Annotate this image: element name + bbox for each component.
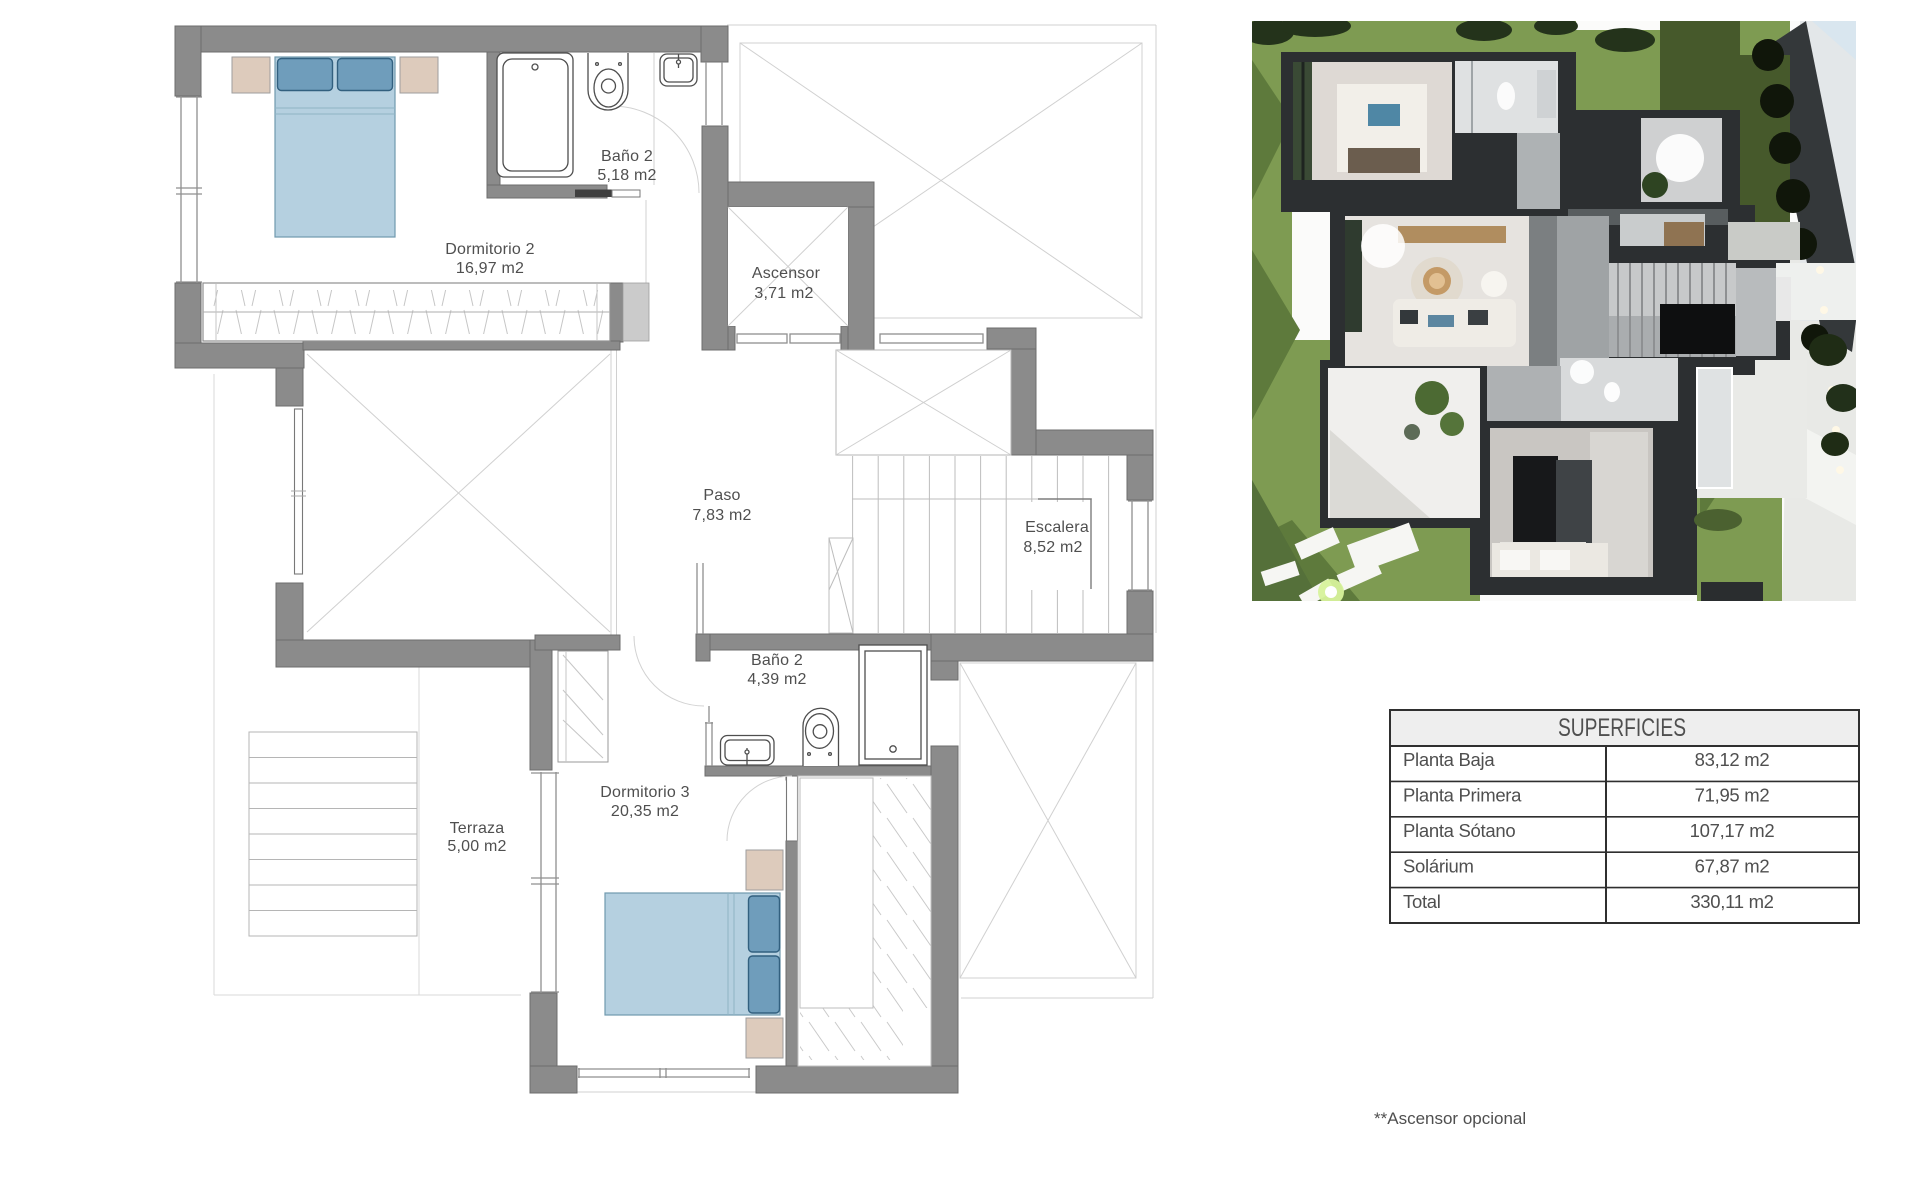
svg-text:Planta Baja: Planta Baja	[1403, 749, 1495, 770]
svg-text:Paso: Paso	[703, 487, 740, 504]
svg-text:Terraza: Terraza	[450, 820, 505, 837]
svg-text:**Ascensor opcional: **Ascensor opcional	[1374, 1109, 1526, 1128]
svg-text:Total: Total	[1403, 891, 1441, 912]
svg-text:3,71 m2: 3,71 m2	[754, 285, 813, 302]
svg-text:20,35 m2: 20,35 m2	[611, 803, 679, 820]
svg-text:Dormitorio 3: Dormitorio 3	[600, 784, 690, 801]
svg-text:Planta Sótano: Planta Sótano	[1403, 820, 1515, 841]
svg-text:71,95 m2: 71,95 m2	[1695, 785, 1770, 806]
svg-text:Planta Primera: Planta Primera	[1403, 785, 1522, 806]
svg-text:330,11 m2: 330,11 m2	[1690, 891, 1773, 912]
svg-text:SUPERFICIES: SUPERFICIES	[1558, 714, 1686, 742]
svg-text:8,52 m2: 8,52 m2	[1023, 539, 1082, 556]
svg-text:16,97 m2: 16,97 m2	[456, 260, 524, 277]
svg-text:7,83 m2: 7,83 m2	[692, 507, 751, 524]
svg-text:67,87 m2: 67,87 m2	[1695, 855, 1770, 876]
svg-text:Solárium: Solárium	[1403, 855, 1474, 876]
svg-text:Ascensor: Ascensor	[752, 265, 821, 282]
svg-text:Escalera: Escalera	[1025, 519, 1089, 536]
svg-text:Baño 2: Baño 2	[601, 148, 653, 165]
svg-text:107,17 m2: 107,17 m2	[1690, 820, 1775, 841]
svg-text:Dormitorio 2: Dormitorio 2	[445, 241, 535, 258]
svg-text:5,00 m2: 5,00 m2	[447, 838, 506, 855]
svg-text:5,18 m2: 5,18 m2	[597, 167, 656, 184]
svg-text:83,12 m2: 83,12 m2	[1695, 749, 1770, 770]
svg-text:4,39 m2: 4,39 m2	[747, 671, 806, 688]
svg-text:Baño 2: Baño 2	[751, 652, 803, 669]
